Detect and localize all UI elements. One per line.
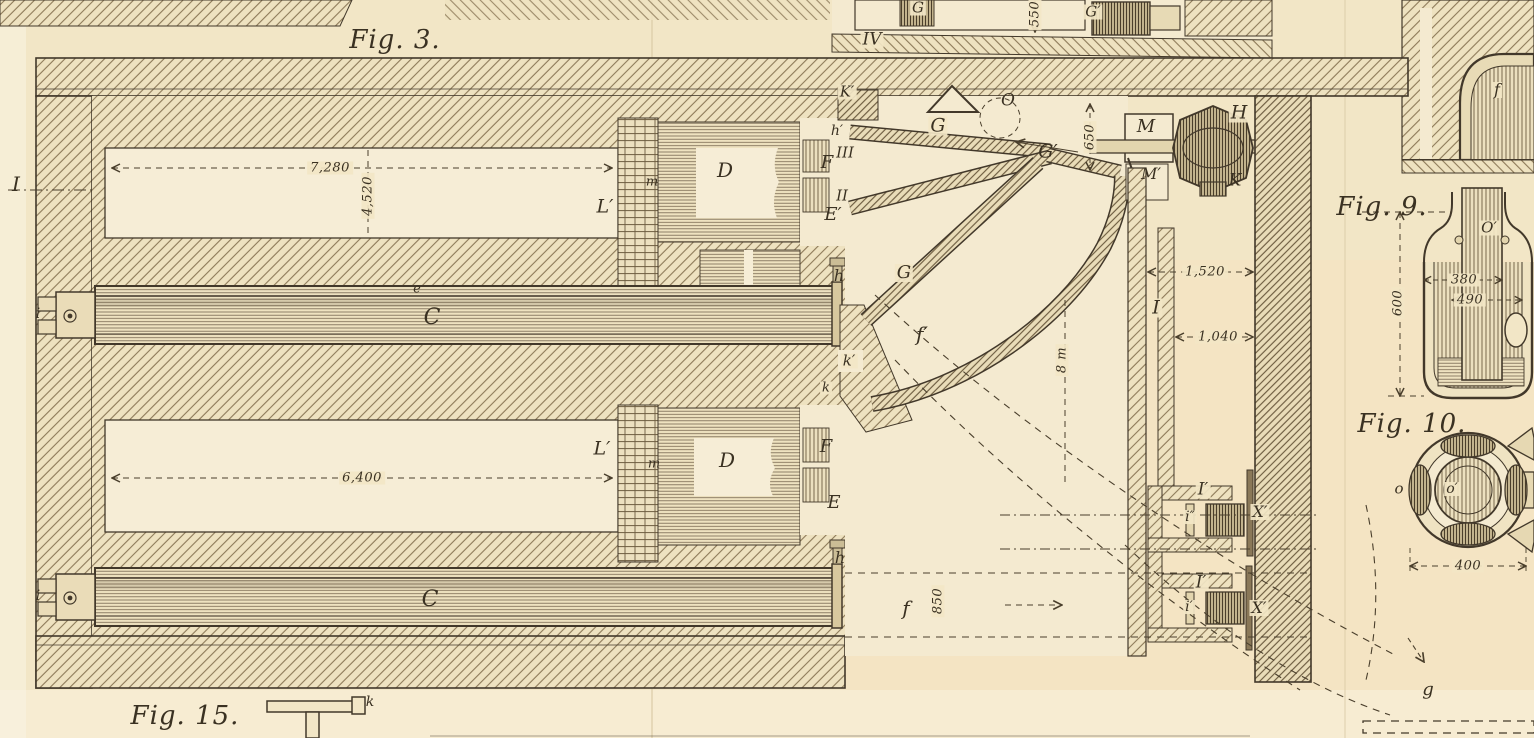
part-G-prime-top: G′ (1083, 5, 1102, 20)
part-f-channel: f (902, 598, 909, 618)
part-X-prime-upper: X′ (1250, 504, 1269, 520)
part-L-prime-lower: L′ (594, 440, 611, 459)
flue-junction (838, 86, 1128, 656)
part-L-prime-upper: L′ (597, 198, 614, 217)
section-I-label: I (12, 174, 20, 194)
part-E-lower: E (827, 494, 840, 512)
patch-D-upper (696, 148, 779, 218)
fig9-title: Fig. 9. (1336, 194, 1427, 220)
part-G-top: G (910, 1, 926, 16)
part-k-fig15: k (366, 695, 374, 709)
dim-main-flue-width: 1,520 (1182, 266, 1228, 279)
part-o-prime-fig10: o′ (1444, 482, 1460, 496)
part-h-upper: h (834, 268, 844, 284)
dim-fig9-height: 600 (1392, 287, 1405, 319)
section-III-label: III (836, 146, 854, 161)
part-k: k (820, 382, 832, 395)
part-h-prime: h′ (831, 124, 843, 138)
bottom-wall (36, 636, 845, 688)
part-G-upper: G (928, 117, 947, 136)
part-G-mid: G (895, 264, 913, 282)
part-X-prime-lower: X′ (1249, 600, 1268, 616)
dim-side-flue-width: 1,040 (1195, 331, 1241, 344)
part-m-upper: m (646, 176, 658, 189)
dim-lower-flue-length: 6,400 (339, 472, 385, 485)
part-i-upper: i (36, 307, 40, 321)
section-IV-label: IV (861, 32, 884, 49)
dim-uptake-width: 650 (1084, 121, 1097, 153)
engraving-canvas (0, 0, 1534, 738)
upper-boiler-setting (38, 96, 850, 396)
engraving-plate: Fig. 3. Fig. 9. Fig. 10. Fig. 15. 7,280 … (0, 0, 1534, 738)
section-II-label: II (836, 189, 848, 204)
part-E-prime-upper: E′ (824, 206, 841, 224)
dim-upper-flue-width: 4,520 (362, 173, 375, 219)
dim-fig10-diameter: 400 (1452, 560, 1484, 573)
top-right-arch-figure (1402, 0, 1534, 173)
lower-boiler-setting (38, 396, 850, 636)
part-H: H (1229, 104, 1250, 123)
part-K-prime: K′ (838, 85, 857, 100)
dim-bottom-channel: 850 (932, 585, 945, 617)
part-C-lower: C (422, 589, 439, 611)
part-M-prime: M′ (1141, 166, 1161, 182)
part-C-upper: C (424, 307, 441, 329)
part-M: M (1137, 118, 1155, 136)
part-h-lower: h (835, 550, 845, 566)
part-i-dblprime: i″ (1183, 510, 1197, 524)
dim-depth-8m: 8 m (1056, 344, 1069, 376)
part-o-fig10: o (1394, 482, 1403, 497)
part-i-lower: i (36, 589, 40, 603)
part-O: O (1001, 93, 1015, 110)
part-F-lower: F (820, 438, 833, 456)
dim-top-cut: 550 (1029, 0, 1042, 30)
dim-upper-flue-length: 7,280 (307, 162, 353, 175)
part-I-prime-upper: I′ (1196, 482, 1211, 499)
fig15-title: Fig. 15. (131, 703, 240, 729)
part-m-lower: m (648, 458, 660, 471)
part-g: g (1422, 681, 1434, 699)
part-F-upper: F (821, 154, 834, 172)
part-f-arch: f (1492, 82, 1502, 98)
part-I-flue: I (1150, 299, 1162, 318)
top-wall (36, 58, 1408, 96)
part-f-prime: f′ (916, 324, 928, 344)
part-D-upper: D (717, 160, 733, 180)
part-K: K (1229, 173, 1242, 190)
part-k-prime: k′ (841, 354, 858, 369)
part-I-prime-lower: I′ (1194, 575, 1209, 592)
part-i-prime: i′ (1183, 600, 1195, 614)
part-D-lower: D (719, 450, 735, 470)
fig10-title: Fig. 10. (1358, 411, 1467, 437)
part-G-prime: G′ (1038, 143, 1058, 162)
part-O-prime-fig9: O′ (1479, 221, 1499, 236)
part-e-upper: e (413, 283, 421, 296)
dim-fig9-outer: 380 (1448, 274, 1480, 287)
fig3-title: Fig. 3. (349, 27, 440, 53)
dim-fig9-inner: 490 (1454, 294, 1486, 307)
